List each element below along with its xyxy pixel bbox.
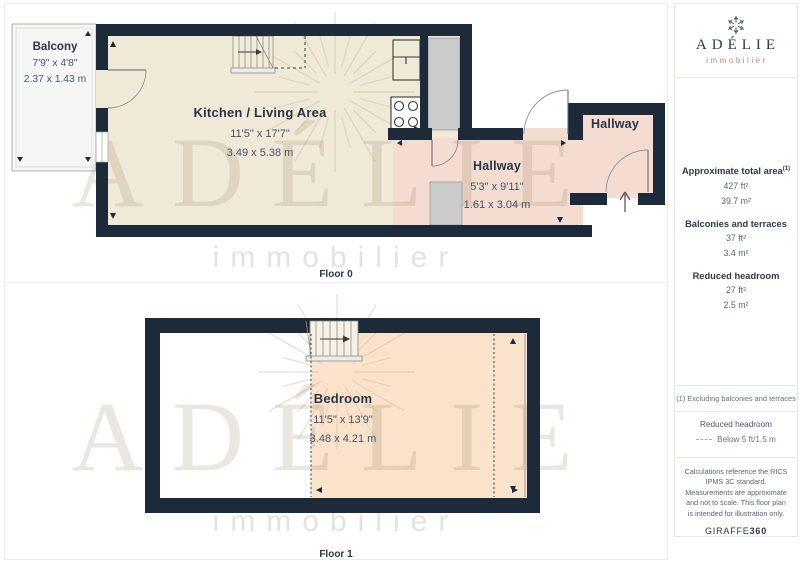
snowflake-icon xyxy=(726,15,746,35)
info-sidebar: ADÉLIE immobilier Approximate total area… xyxy=(674,3,798,537)
dashed-line-icon xyxy=(696,439,712,440)
reduced-headroom-group: Reduced headroom 27 ft² 2.5 m² xyxy=(675,271,797,313)
disclaimer-text: Calculations reference the RICS IPMS 3C … xyxy=(683,467,789,519)
hallway-entry-name-label: Hallway xyxy=(591,117,639,131)
area-summary: Approximate total area(1) 427 ft² 39.7 m… xyxy=(675,78,797,386)
bedroom-dim-metric: 3.48 x 4.21 m xyxy=(310,433,377,445)
balcony-dim-imperial: 7'9" x 4'8" xyxy=(32,58,77,69)
hallway-main-dim-imperial: 5'3" x 9'11" xyxy=(470,181,523,193)
total-area-footnote-mark: (1) xyxy=(783,166,790,172)
floor0-label: Floor 0 xyxy=(319,269,353,280)
bedroom-dim-imperial: 11'5" x 13'9" xyxy=(313,414,373,426)
wall-step-gap xyxy=(583,205,592,225)
floor1-plan: ADÉLIE immobilier xyxy=(0,282,672,566)
staircase-floor1 xyxy=(306,321,362,361)
disclaimer: Calculations reference the RICS IPMS 3C … xyxy=(675,458,797,536)
balconies-area-label: Balconies and terraces xyxy=(675,219,797,229)
floorplan-page: ADÉLIE immobilier xyxy=(0,0,800,566)
total-area-group: Approximate total area(1) 427 ft² 39.7 m… xyxy=(675,166,797,208)
kitchen-living-dim-metric: 3.49 x 5.38 m xyxy=(227,147,294,159)
giraffe360-brand: GIRAFFE360 xyxy=(683,526,789,536)
balconies-area-group: Balconies and terraces 37 ft² 3.4 m² xyxy=(675,219,797,261)
total-area-m: 39.7 m² xyxy=(675,194,797,209)
kitchen-living-dim-imperial: 11'5" x 17'7" xyxy=(230,128,290,140)
total-area-label: Approximate total area(1) xyxy=(675,166,797,176)
hallway-main-name-label: Hallway xyxy=(473,159,521,173)
legend: Reduced headroom Below 5 ft/1.5 m xyxy=(675,412,797,458)
hallway-main-dim-metric: 1.61 x 3.04 m xyxy=(464,199,531,211)
hallway-closet xyxy=(430,182,462,225)
bedroom-name-label: Bedroom xyxy=(314,391,372,406)
balcony-window xyxy=(96,132,108,162)
brand-logo: ADÉLIE immobilier xyxy=(675,4,797,78)
utility-closet xyxy=(428,38,460,130)
balconies-area-ft: 37 ft² xyxy=(675,231,797,246)
floor1-label: Floor 1 xyxy=(319,549,353,560)
reduced-headroom-m: 2.5 m² xyxy=(675,298,797,313)
reduced-headroom-label: Reduced headroom xyxy=(675,271,797,281)
kitchen-living-name-label: Kitchen / Living Area xyxy=(193,105,327,120)
floor0-plan: ADÉLIE immobilier xyxy=(0,0,672,282)
legend-row: Below 5 ft/1.5 m xyxy=(675,435,797,444)
legend-title: Reduced headroom xyxy=(675,420,797,429)
brand-name: ADÉLIE xyxy=(692,37,780,54)
reduced-headroom-ft: 27 ft² xyxy=(675,283,797,298)
legend-entry: Below 5 ft/1.5 m xyxy=(717,435,776,444)
kitchen-sink-unit xyxy=(393,40,420,80)
area-footnote: (1) Excluding balconies and terraces xyxy=(675,386,797,412)
balconies-area-m: 3.4 m² xyxy=(675,246,797,261)
brand-tagline: immobilier xyxy=(704,56,767,65)
balcony-name-label: Balcony xyxy=(33,41,78,53)
total-area-ft: 427 ft² xyxy=(675,179,797,194)
balcony-dim-metric: 2.37 x 1.43 m xyxy=(24,74,86,85)
stove-icon xyxy=(391,97,421,131)
